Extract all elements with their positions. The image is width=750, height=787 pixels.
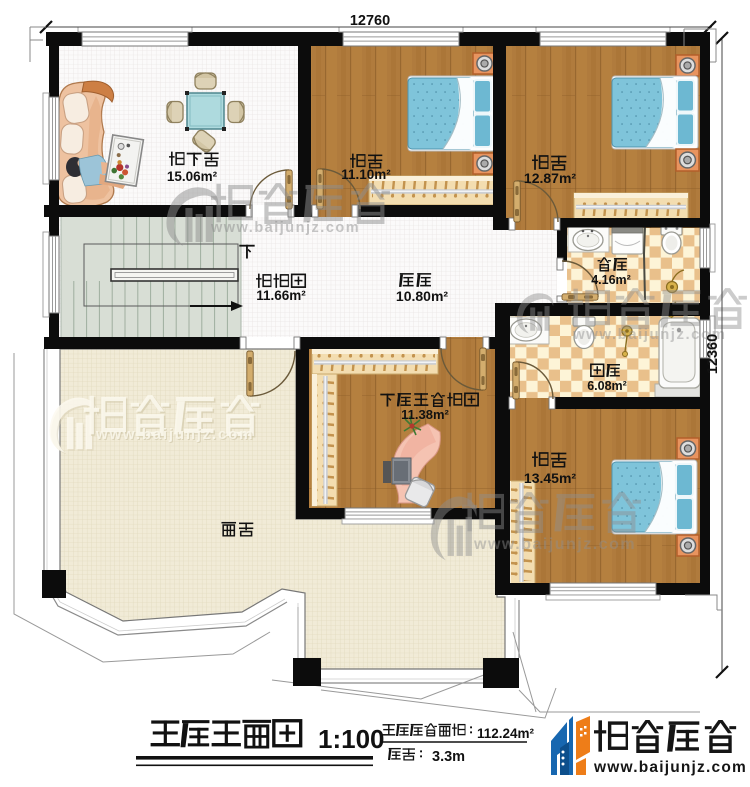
- svg-text:4.16m²: 4.16m²: [591, 273, 631, 287]
- svg-text:10.80m²: 10.80m²: [396, 288, 448, 304]
- svg-text:11.38m²: 11.38m²: [401, 407, 449, 422]
- svg-text:15.06m²: 15.06m²: [167, 169, 218, 184]
- svg-text:www.baijunjz.com: www.baijunjz.com: [210, 220, 360, 236]
- svg-text:112.24m²: 112.24m²: [477, 726, 535, 741]
- svg-text:13.45m²: 13.45m²: [524, 470, 576, 486]
- svg-text:www.baijunjz.com: www.baijunjz.com: [473, 536, 636, 553]
- svg-text:www.baijunjz.com: www.baijunjz.com: [95, 426, 254, 443]
- svg-text:1:100: 1:100: [318, 724, 385, 754]
- svg-text:6.08m²: 6.08m²: [587, 379, 627, 393]
- svg-text:www.baijunjz.com: www.baijunjz.com: [572, 326, 726, 343]
- svg-text:11.10m²: 11.10m²: [341, 167, 391, 182]
- svg-text:12360: 12360: [705, 334, 721, 374]
- svg-text:12.87m²: 12.87m²: [524, 170, 576, 186]
- svg-text:www.baijunjz.com: www.baijunjz.com: [593, 759, 747, 776]
- svg-text:11.66m²: 11.66m²: [256, 288, 306, 303]
- svg-text:3.3m: 3.3m: [432, 749, 465, 765]
- svg-text:12760: 12760: [350, 13, 390, 29]
